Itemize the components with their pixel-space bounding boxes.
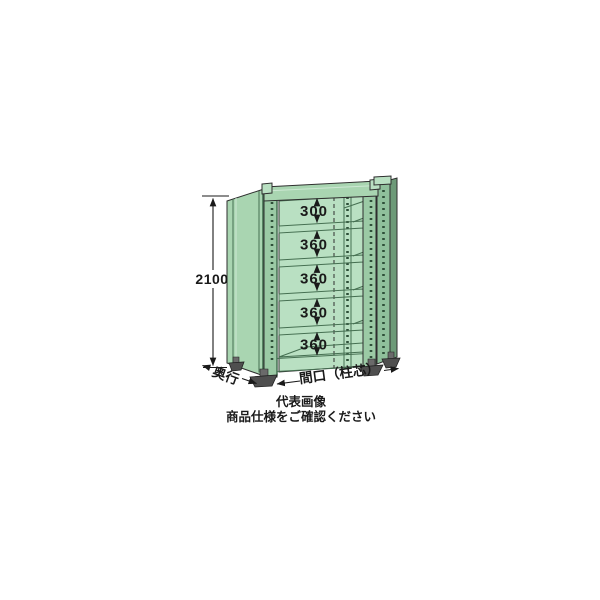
gap3-value: 360 (300, 271, 328, 288)
product-image-canvas: 2100 300 360 360 360 360 奥行 間口（柱芯） 代表画像 … (0, 0, 600, 600)
top-corner-cap-back-right (374, 176, 391, 185)
width-arrow-right (384, 369, 399, 371)
caption-line1: 代表画像 (275, 394, 327, 409)
caption-line2: 商品仕様をご確認ください (226, 409, 376, 424)
height-value: 2100 (195, 271, 228, 287)
gap2-value: 360 (300, 237, 328, 254)
back-right-post (377, 180, 390, 364)
top-corner-cap-left (262, 183, 272, 194)
width-arrow-left (277, 381, 300, 384)
gap1-value: 300 (300, 203, 328, 220)
gap5-value: 360 (300, 337, 328, 354)
caption: 代表画像 商品仕様をご確認ください (226, 394, 376, 424)
front-left-post (264, 187, 277, 378)
right-side-panel-edge (390, 178, 397, 360)
front-right-post (363, 181, 376, 368)
height-dimension: 2100 (195, 196, 229, 368)
product-illustration: 2100 300 360 360 360 360 奥行 間口（柱芯） 代表画像 … (0, 0, 600, 600)
gap4-value: 360 (300, 305, 328, 322)
